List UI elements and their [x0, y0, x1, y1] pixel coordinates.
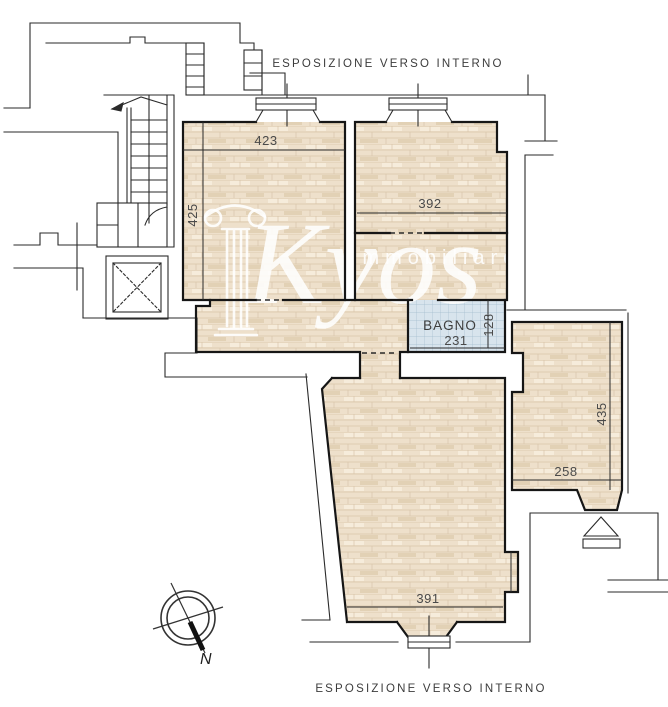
dim-camera3-height: 435: [594, 402, 609, 425]
compass-rose: N: [153, 583, 223, 668]
dim-camera1-width: 423: [254, 133, 277, 148]
compass-needle: [190, 622, 203, 650]
dim-soggiorno-width: 391: [416, 591, 439, 606]
dim-camera1-height: 425: [185, 203, 200, 226]
elevator-x: [113, 263, 161, 312]
floor-plan-svg: Kyos immobiliare: [0, 0, 668, 707]
floor-plan-page: Kyos immobiliare: [0, 0, 668, 707]
exposure-label-bottom: ESPOSIZIONE VERSO INTERNO: [315, 683, 546, 695]
dim-bagno-height: 128: [481, 313, 496, 336]
dim-camera3-width: 258: [554, 464, 577, 479]
entrance-arrow-icon: [584, 517, 618, 536]
elevator: [106, 256, 168, 319]
room-label-bagno: BAGNO: [423, 318, 477, 333]
staircase: [97, 95, 167, 247]
compass-north-label: N: [200, 651, 212, 668]
watermark-subtitle: immobiliare: [352, 247, 520, 269]
dim-bagno-width: 231: [444, 333, 467, 348]
watermark: Kyos immobiliare: [205, 198, 520, 335]
exposure-label-top: ESPOSIZIONE VERSO INTERNO: [272, 58, 503, 70]
dim-camera2-width: 392: [418, 196, 441, 211]
